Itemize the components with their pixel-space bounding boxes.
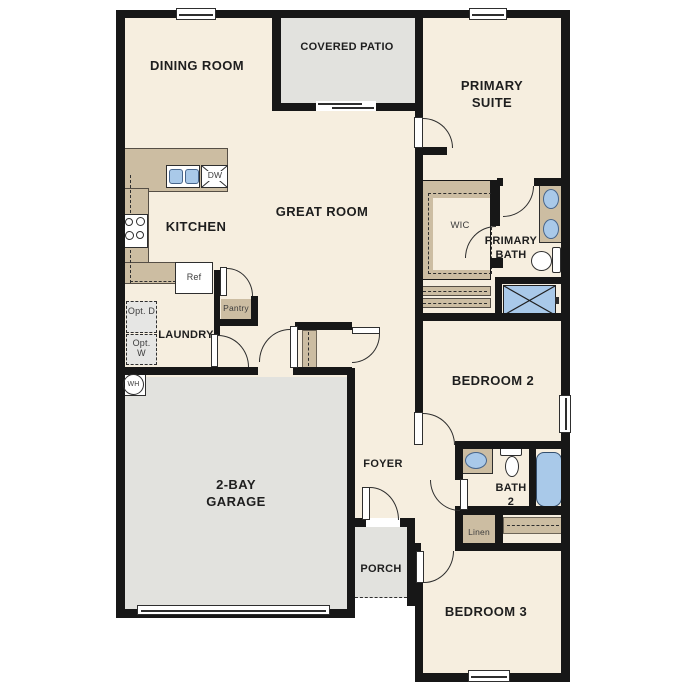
water-heater-label: WH xyxy=(121,381,146,389)
stove-burner-2 xyxy=(136,217,145,226)
great-room-label: GREAT ROOM xyxy=(272,204,372,221)
bath2-sink xyxy=(465,452,487,469)
hall-closet-shelf-bottom xyxy=(418,298,491,308)
wall-primary-suite-left-lower xyxy=(415,148,423,322)
primary-shower-handle xyxy=(555,297,559,304)
dining-window xyxy=(176,8,216,20)
bedroom3-label: BEDROOM 3 xyxy=(426,604,546,621)
wall-bedroom2-left xyxy=(415,322,423,413)
wall-porch-top-right xyxy=(400,518,415,527)
garage-door xyxy=(137,605,330,615)
wall-coat-closet-top xyxy=(295,322,352,330)
dining-room-label: DINING ROOM xyxy=(147,58,247,75)
wall-shower-top xyxy=(495,277,562,284)
wall-wic-right-upper xyxy=(491,180,500,226)
bedroom2-window xyxy=(559,395,571,433)
optional-washer-label: Opt. W xyxy=(127,338,156,359)
primary-bath-label: PRIMARY BATH xyxy=(471,234,551,262)
hall-closet-shelf-top xyxy=(418,286,491,296)
stove-burner-1 xyxy=(125,218,133,226)
porch-label: PORCH xyxy=(341,562,421,576)
wall-exterior-left xyxy=(116,10,125,618)
wall-bedroom3-top-right xyxy=(455,543,562,551)
sink-basin-right xyxy=(185,169,199,184)
bedroom2-label: BEDROOM 2 xyxy=(433,373,553,390)
wall-garage-right xyxy=(347,368,355,618)
primary-suite-door-leaf xyxy=(414,117,423,148)
garage-label: 2-BAY GARAGE xyxy=(186,477,286,510)
wall-suite-door-stub xyxy=(423,147,447,155)
floor-plan: DW Ref Opt. D Opt. W WH Pantry xyxy=(0,0,687,687)
wall-primary-bath-top-right xyxy=(534,178,562,186)
foyer-label: FOYER xyxy=(343,457,423,471)
stove-burner-4 xyxy=(136,231,144,239)
primary-suite-window xyxy=(469,8,507,20)
laundry-label: LAUNDRY xyxy=(156,328,216,342)
bedroom3-closet-shelf xyxy=(503,517,562,534)
wic-label: WIC xyxy=(440,221,480,232)
sink-basin-left xyxy=(169,169,183,184)
wall-primary-suite-left-upper xyxy=(415,10,423,118)
porch-edge-dashed-line xyxy=(355,597,407,598)
coat-closet-door-leaf xyxy=(352,327,380,334)
bath2-label: BATH 2 xyxy=(491,481,531,509)
pantry-wall-bottom xyxy=(214,319,258,326)
bath2-toilet-bowl xyxy=(505,456,519,477)
primary-suite-label: PRIMARY SUITE xyxy=(442,78,542,111)
wall-patio-left xyxy=(272,10,281,111)
bath2-door-leaf xyxy=(460,479,468,510)
patio-floor xyxy=(281,18,415,103)
optional-dryer-label: Opt. D xyxy=(127,306,156,316)
bedroom2-door-leaf xyxy=(414,412,423,445)
linen-label: Linen xyxy=(463,528,495,538)
dishwasher-label: DW xyxy=(203,171,227,181)
wall-bath2-left xyxy=(455,449,463,480)
wall-garage-top-right xyxy=(293,367,352,375)
patio-sliding-door xyxy=(316,101,376,111)
wall-exterior-right xyxy=(561,10,570,682)
kitchen-optional-dashed-line-2 xyxy=(130,281,176,282)
garage-entry-door-leaf xyxy=(290,326,298,368)
refrigerator-label: Ref xyxy=(176,272,212,282)
primary-shower-x-icon xyxy=(503,285,556,316)
wall-bedroom2-top xyxy=(415,313,562,321)
wall-bath2-top xyxy=(455,441,562,449)
kitchen-label: KITCHEN xyxy=(146,219,246,236)
covered-patio-label: COVERED PATIO xyxy=(297,40,397,54)
front-door-leaf xyxy=(362,487,370,520)
bedroom3-door-opening xyxy=(421,543,455,551)
coat-closet-shelf xyxy=(302,330,317,368)
pantry-label: Pantry xyxy=(221,304,251,314)
stove-burner-3 xyxy=(125,231,134,240)
coat-closet-dashed-line xyxy=(308,332,309,366)
primary-toilet-tank xyxy=(552,247,561,273)
bedroom3-window xyxy=(468,670,510,682)
primary-sink-1 xyxy=(543,189,559,209)
bath2-tub xyxy=(536,452,562,507)
pantry-door-leaf xyxy=(220,267,227,296)
